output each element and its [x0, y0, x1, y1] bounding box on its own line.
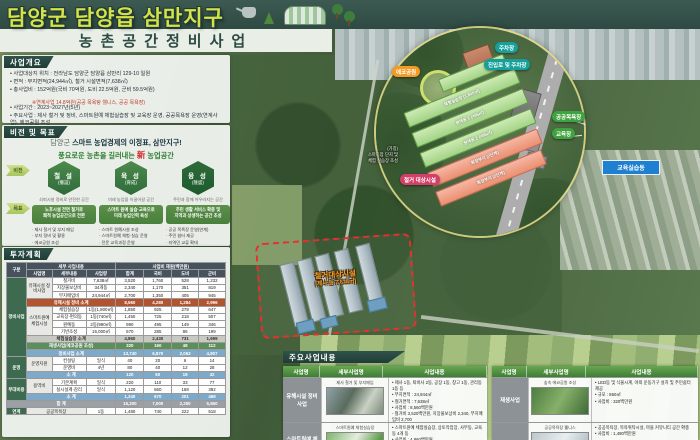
table-cell: 4,807 — [199, 350, 226, 357]
slogan2-b: 농업공간 — [145, 151, 173, 160]
table-cell: 운영지원 — [26, 357, 52, 372]
page-title: 담양군 담양읍 삼만지구 — [7, 2, 224, 32]
table-cell: 원예동 — [52, 321, 86, 328]
projects-header: 사업명 세부사업명 사업내용 — [283, 366, 487, 377]
table-cell: 528 — [172, 277, 199, 284]
table-cell: 945 — [199, 292, 226, 299]
table-cell: 34개동 — [86, 284, 116, 291]
table-cell: 교육장·편의동 — [52, 313, 86, 320]
table-cell: 6,870 — [144, 350, 172, 357]
table-cell: 346 — [199, 321, 226, 328]
table-cell: 용역비 — [26, 379, 52, 394]
table-cell: 218 — [172, 313, 199, 320]
vision-slogan-1: 담양군 스마트 농업경제의 이정표, 삼만지구! — [2, 138, 230, 148]
table-cell: 2,340 — [116, 284, 144, 291]
invest-table: 구분세부 사업내용사업비 재원(백만원)사업명세부내용사업량합계국비도비군비정비… — [6, 262, 226, 415]
table-cell: 2,063 — [172, 350, 199, 357]
photo-greenhouse — [326, 432, 384, 440]
table-cell: 12 — [172, 364, 199, 371]
list-item: • 스마트원예 체험실습장, 상토작업장, 사무동, 교육동 4개 동 — [392, 425, 484, 437]
table-cell: 합 계 — [7, 400, 116, 407]
list-item: • 제사 1동, 퇴비사 2동, 공장 1동, 창고 1동, 관리동 1동 등 — [392, 380, 484, 392]
subtitle-band: 농촌공간정비사업 — [0, 29, 332, 52]
table-cell: 160 — [144, 342, 172, 349]
poster-canvas: 담양군 담양읍 삼만지구 농촌공간정비사업 • 사업대상지 위치 : 전라남도 … — [0, 0, 700, 440]
table-cell: 48 — [172, 342, 199, 349]
demolition-site-outline: 철거대상시설 (제사 등 7,638㎡) — [255, 233, 417, 340]
greenhouse-icon — [284, 6, 326, 25]
table-cell: 60 — [144, 371, 172, 378]
annotation-line: 체험 실습장 조성 — [348, 158, 398, 164]
table-cell: 507 — [199, 313, 226, 320]
watering-can-icon — [242, 7, 256, 18]
table-cell: 40 — [144, 364, 172, 371]
vision-card: 담양군 스마트 농업경제의 이정표, 삼만지구! 풍요로운 농촌을 길러내는 新… — [2, 125, 230, 246]
table-cell: 2,250 — [172, 400, 199, 407]
table-cell: 구분 — [7, 263, 27, 278]
project-name: 스마트원예 체험시설 — [283, 423, 321, 440]
table-cell: 570 — [116, 328, 144, 335]
table-cell: 국비 — [144, 270, 172, 277]
table-cell: 정비사업 — [7, 277, 27, 357]
table-cell: 405 — [172, 292, 199, 299]
table-cell: 20 — [144, 357, 172, 364]
list-item: • 사업대상지 위치 : 전라남도 담양군 담양읍 삼만리 129-10 일원 — [10, 71, 224, 79]
table-cell: 일식 — [86, 386, 116, 393]
table-cell: 392 — [199, 386, 226, 393]
projects-table-right: 사업명 세부사업명 사업내용 재생사업 숲속 에코공원 조성 • LED등 및 … — [492, 366, 698, 440]
vision-caption: 쇠퇴시설 정비로 안전한 공간 — [32, 197, 96, 203]
invest-card: 구분세부 사업내용사업비 재원(백만원)사업명세부내용사업량합계국비도비군비정비… — [2, 247, 230, 437]
section-banner-invest: 투자계획 — [4, 248, 54, 260]
projects-table-left: 사업명 세부사업명 사업내용 유해시설 정비사업 제사 철거 및 부지매입 • … — [283, 366, 487, 440]
photo-bathhouse — [531, 432, 589, 440]
table-cell: 495 — [144, 321, 172, 328]
badge-parking: 주차장 — [495, 42, 518, 53]
table-cell: 부대비용 — [7, 379, 27, 401]
col-header: 사업명 — [492, 366, 527, 377]
table-cell: 24,944㎡ — [86, 292, 116, 299]
hexagon-badge: 철 설 (撤設) — [48, 161, 80, 195]
blue-roof-building — [296, 318, 316, 334]
aerial-blue-label: 교육실습동 — [602, 160, 660, 175]
hex-sub: (隆盛) — [182, 180, 214, 186]
table-cell: 120 — [116, 371, 144, 378]
table-cell: 컨설팅 — [52, 357, 86, 364]
project-items: • LED등 및 식물시계, 야외 운동기구 설치 및 주민쉼터 제공• 규모 … — [592, 378, 698, 422]
col-header: 사업내용 — [383, 366, 487, 377]
table-row: 연계공공목욕장1동1,480740222518 — [7, 408, 226, 415]
hex-sub: (撤設) — [48, 180, 80, 186]
goal-arrow-icon: 목표 — [6, 203, 30, 214]
table-row: 사업명세부내용사업량합계국비도비군비 — [7, 270, 226, 277]
slogan-main: 스마트 농업경제의 이정표, 삼만지구! — [72, 138, 182, 147]
table-cell: 4,280 — [144, 299, 172, 306]
table-cell: 42 — [199, 371, 226, 378]
project-detail: 스마트원예 체험실습장 — [321, 423, 389, 440]
table-row: 정비사업 소계13,7406,8702,0634,807 — [7, 350, 226, 357]
list-item: - 철거비 3,520백만원, 지장물보상비 2,340, 부지매입비 2,70… — [392, 411, 484, 423]
project-name: 재생사업 — [492, 378, 528, 422]
table-cell: 1동(740㎡) — [86, 313, 116, 320]
vision-box: 스마트 원예 실습·교육으로 미래 농업인력 육성 — [99, 205, 163, 224]
table-cell: 647 — [199, 306, 226, 313]
table-cell: 1동 — [86, 408, 116, 415]
table-cell: 7,000 — [144, 400, 172, 407]
vision-box: 노후시설 전면 철거로 쾌적 농업공간으로 전환 — [32, 205, 96, 224]
vision-column-3: 융 성 (隆盛) 주민과 함께 어우러지는 공간 주민 생활 서비스 확충 및 … — [166, 161, 230, 246]
table-cell: 공공목욕장 — [26, 408, 86, 415]
table-cell: 사업비 재원(백만원) — [116, 263, 226, 270]
col-header: 세부사업명 — [320, 366, 383, 377]
table-cell: 체험실습장 소계 — [26, 335, 116, 342]
table-cell: 2,996 — [199, 299, 226, 306]
table-cell: 112 — [199, 342, 226, 349]
col-header: 사업명 — [283, 366, 320, 377]
tree-icon — [344, 11, 355, 22]
table-cell: 14 — [199, 357, 226, 364]
table-cell: 110 — [144, 379, 172, 386]
project-items: • 제사 1동, 퇴비사 2동, 공장 1동, 창고 1동, 관리동 1동 등•… — [389, 378, 487, 422]
list-item: • 사업비 : 320백만원 — [595, 399, 695, 405]
table-cell: 1,120 — [116, 386, 144, 393]
table-cell: 15,200 — [116, 400, 144, 407]
badge-access-road: 진입로 및 주차장 — [484, 59, 530, 70]
table-cell: 기본계획 — [52, 379, 86, 386]
table-cell: 5,950 — [199, 400, 226, 407]
vision-box-line: 주민 생활 서비스 확충 및 — [167, 207, 229, 213]
blue-roof-building — [319, 315, 338, 330]
vision-items: · 제사 철거 및 부지 매입· 부지 정비 및 활용· 에코공원 조성 — [32, 227, 96, 246]
table-cell: 소 계 — [26, 393, 116, 400]
table-cell: 86 — [172, 328, 199, 335]
table-cell: 소 계 — [26, 371, 116, 378]
project-detail: 숲속 에코공원 조성 — [528, 378, 592, 422]
list-item: · 전문 교육과정 운영 — [99, 240, 163, 246]
badge-public-bath: 공공목욕장 — [552, 111, 585, 122]
list-item: • 사업기간 : 2023~2027년(5년) — [10, 105, 224, 113]
section-banner-vision: 비전 및 목표 — [4, 126, 68, 138]
table-row: 정비사업유해시설 정비사업철거비7,638㎡3,5201,7605281,232 — [7, 277, 226, 284]
list-item: • LED등 및 식물시계, 야외 운동기구 설치 및 주민쉼터 제공 — [595, 380, 695, 392]
table-cell: 149 — [172, 321, 199, 328]
section-banner-overview: 사업개요 — [4, 56, 54, 68]
table-cell: 8,560 — [116, 299, 144, 306]
table-cell: 스마트원예 체험시설 — [26, 306, 52, 335]
table-row: 구분세부 사업내용사업비 재원(백만원) — [7, 263, 226, 270]
table-row: 합 계15,2007,0002,2505,950 — [7, 400, 226, 407]
list-item: • 총사업비 : 152억원(국비 70억원, 도비 22.5억원, 군비 59… — [10, 87, 224, 95]
photo-ecopark — [531, 387, 589, 415]
table-cell: 유해시설 정비 소계 — [26, 299, 116, 306]
list-item: • 사업비 : 1,480백만원 — [595, 431, 695, 437]
table-cell: 285 — [144, 328, 172, 335]
table-cell: 13,740 — [116, 350, 144, 357]
table-row: 체험실습장 소계4,8602,4307311,699 — [7, 335, 226, 342]
col-header: 사업내용 — [586, 366, 698, 377]
sprout-icon — [264, 12, 274, 24]
plan-annotation: (가칭) 스마트팜 단지 및 체험 실습장 조성 — [348, 146, 398, 164]
table-cell: 운영 — [7, 357, 27, 379]
table-row: 스마트원예 체험시설체험실습장1동(1,800㎡)1,850925278647 — [7, 306, 226, 313]
list-item: · 에코공원 조성 — [32, 240, 96, 246]
table-cell: 201 — [172, 393, 199, 400]
table-cell: 군비 — [199, 270, 226, 277]
table-cell: 670 — [144, 393, 172, 400]
page-subtitle: 농촌공간정비사업 — [79, 30, 253, 51]
table-cell: 168 — [172, 386, 199, 393]
table-cell: 199 — [199, 328, 226, 335]
photo-caption: 스마트원예 체험실습장 — [324, 425, 386, 431]
table-cell: 725 — [144, 313, 172, 320]
table-cell: 40 — [116, 357, 144, 364]
project-items: • 스마트원예 체험실습장, 상토작업장, 사무동, 교육동 4개 동• 사업비… — [389, 423, 487, 440]
photo-caption: 공공목욕장 웰니스 — [531, 425, 589, 431]
project-row: 재생사업 숲속 에코공원 조성 • LED등 및 식물시계, 야외 운동기구 설… — [492, 377, 698, 422]
table-cell: 33 — [172, 379, 199, 386]
badge-ecopark: 에코공원 — [392, 66, 420, 77]
table-cell: 유해시설 정비사업 — [26, 277, 52, 299]
table-cell: 실시설계·감리 — [52, 386, 86, 393]
project-detail: 공공목욕장 웰니스 — [528, 423, 592, 440]
table-cell: 222 — [172, 408, 199, 415]
table-cell: 사업량 — [86, 270, 116, 277]
table-row: 재생사업(에코공원 조성)32016048112 — [7, 342, 226, 349]
table-cell: 740 — [144, 408, 172, 415]
table-cell: 1,170 — [144, 284, 172, 291]
table-row: 소 계1,340670201469 — [7, 393, 226, 400]
project-row: 유해시설 정비사업 제사 철거 및 부지매입 • 제사 1동, 퇴비사 2동, … — [283, 377, 487, 422]
vision-caption: 주민과 함께 어우러지는 공간 — [166, 197, 230, 203]
table-row: 유해시설 정비 소계8,5604,2801,2842,996 — [7, 299, 226, 306]
vision-box-line: 스마트 원예 실습·교육으로 — [100, 207, 162, 213]
project-name: 연계사업 — [492, 423, 528, 440]
table-cell: 1동(1,800㎡) — [86, 306, 116, 313]
section-banner-projects: 주요사업내용 — [283, 351, 405, 363]
table-cell: 15,000㎡ — [86, 328, 116, 335]
table-cell: 469 — [199, 393, 226, 400]
vision-box: 주민 생활 서비스 확충 및 지역과 상생하는 공간 조성 — [166, 205, 230, 224]
table-cell: 일식 — [86, 357, 116, 364]
table-cell: 819 — [199, 284, 226, 291]
table-cell: 990 — [116, 321, 144, 328]
vision-box-line: 쾌적 농업공간으로 전환 — [33, 213, 95, 219]
list-item: · 지역민 교류 확대 — [166, 240, 230, 246]
table-row: 소 계120601842 — [7, 371, 226, 378]
table-cell: 세부내용 — [52, 270, 86, 277]
table-cell: 18 — [172, 371, 199, 378]
photo-demolition — [326, 387, 384, 415]
table-cell: 체험실습장 — [52, 306, 86, 313]
table-cell: 6 — [172, 357, 199, 364]
table-cell: 부지매입비 — [52, 292, 86, 299]
project-name: 유해시설 정비사업 — [283, 378, 321, 422]
vision-box-line: 지역과 상생하는 공간 조성 — [167, 213, 229, 219]
vision-box-line: 미래 농업인력 육성 — [100, 213, 162, 219]
tree-icon — [332, 4, 343, 15]
table-cell: 일식 — [86, 379, 116, 386]
slogan2-a: 풍요로운 농촌을 길러내는 — [58, 151, 137, 160]
table-cell: 1,850 — [116, 306, 144, 313]
table-cell: 925 — [144, 306, 172, 313]
table-cell: 1,450 — [116, 313, 144, 320]
vision-column-1: 철 설 (撤設) 쇠퇴시설 정비로 안전한 공간 노후시설 전면 철거로 쾌적 … — [32, 161, 96, 246]
table-cell: 1,284 — [172, 299, 199, 306]
hex-main: 융 성 — [182, 170, 214, 180]
table-cell: 1,760 — [144, 277, 172, 284]
table-cell: 1,699 — [199, 335, 226, 342]
project-detail: 제사 철거 및 부지매입 — [321, 378, 389, 422]
table-cell: 560 — [144, 386, 172, 393]
hexagon-badge: 융 성 (隆盛) — [182, 161, 214, 195]
table-cell: 연계 — [7, 408, 27, 415]
table-cell: 지장물보상비 — [52, 284, 86, 291]
hex-main: 육 성 — [115, 170, 147, 180]
hex-main: 철 설 — [48, 170, 80, 180]
table-row: 운영운영지원컨설팅일식4020614 — [7, 357, 226, 364]
project-row: 스마트원예 체험시설 스마트원예 체험실습장 • 스마트원예 체험실습장, 상토… — [283, 422, 487, 440]
table-cell: 1,232 — [199, 277, 226, 284]
table-cell: 철거비 — [52, 277, 86, 284]
hex-sub: (育成) — [115, 180, 147, 186]
table-cell: 세부 사업내용 — [26, 263, 116, 270]
table-cell: 2,430 — [144, 335, 172, 342]
table-cell: 합계 — [116, 270, 144, 277]
table-cell: 2동(990㎡) — [86, 321, 116, 328]
table-cell: 77 — [199, 379, 226, 386]
hexagon-badge: 육 성 (育成) — [115, 161, 147, 195]
photo-caption: 제사 철거 및 부지매입 — [324, 380, 386, 386]
vision-arrow-icon: 비전 — [6, 165, 30, 176]
vision-column-2: 육 성 (育成) 미래 농업을 이끌어갈 공간 스마트 원예 실습·교육으로 미… — [99, 161, 163, 246]
badge-demolition: 철거 대상시설 — [400, 174, 440, 185]
vision-items: · 스마트 원예시설 조성· 스마트원예 체험·실습 운영· 전문 교육과정 운… — [99, 227, 163, 246]
table-cell: 정비사업 소계 — [26, 350, 116, 357]
table-cell: 4년 — [86, 364, 116, 371]
table-cell: 3,520 — [116, 277, 144, 284]
table-cell: 28 — [199, 364, 226, 371]
slogan-prefix: 담양군 — [50, 138, 72, 147]
table-cell: 731 — [172, 335, 199, 342]
table-cell: 80 — [116, 364, 144, 371]
table-cell: 320 — [116, 342, 144, 349]
table-cell: 운영비 — [52, 364, 86, 371]
project-row: 연계사업 공공목욕장 웰니스 • 공공목욕장, 목욕위탁시설, 마을 커뮤니티 … — [492, 422, 698, 440]
table-cell: 351 — [172, 284, 199, 291]
project-items: • 공공목욕장, 목욕위탁시설, 마을 커뮤니티 공간 확충• 사업비 : 1,… — [592, 423, 698, 440]
table-cell: 220 — [116, 379, 144, 386]
projects-header: 사업명 세부사업명 사업내용 — [492, 366, 698, 377]
vision-slogan-2: 풍요로운 농촌을 길러내는 新 농업공간 — [2, 149, 230, 161]
photo-caption: 숲속 에코공원 조성 — [531, 380, 589, 386]
table-cell: 재생사업(에코공원 조성) — [26, 342, 116, 349]
vision-items: · 공공 목욕장 운영(연계)· 주민 쉼터 제공· 지역민 교류 확대 — [166, 227, 230, 246]
table-cell: 4,860 — [116, 335, 144, 342]
table-cell: 7,638㎡ — [86, 277, 116, 284]
table-cell: 2,700 — [116, 292, 144, 299]
col-header: 세부사업명 — [527, 366, 586, 377]
table-cell: 기반조성 — [52, 328, 86, 335]
list-item: • 면적 : 부지면적(24,944㎡), 철거 시설면적(7,638㎡) — [10, 79, 224, 87]
table-cell: 278 — [172, 306, 199, 313]
table-cell: 도비 — [172, 270, 199, 277]
table-cell: 1,340 — [116, 393, 144, 400]
vision-caption: 미래 농업을 이끌어갈 공간 — [99, 197, 163, 203]
table-row: 부대비용용역비기본계획일식2201103377 — [7, 379, 226, 386]
table-cell: 사업명 — [26, 270, 52, 277]
table-cell: 1,350 — [144, 292, 172, 299]
overview-list: • 사업대상지 위치 : 전라남도 담양군 담양읍 삼만리 129-10 일원•… — [10, 71, 224, 95]
table-cell: 518 — [199, 408, 226, 415]
badge-education: 교육장 — [552, 128, 575, 139]
table-cell: 1,480 — [116, 408, 144, 415]
